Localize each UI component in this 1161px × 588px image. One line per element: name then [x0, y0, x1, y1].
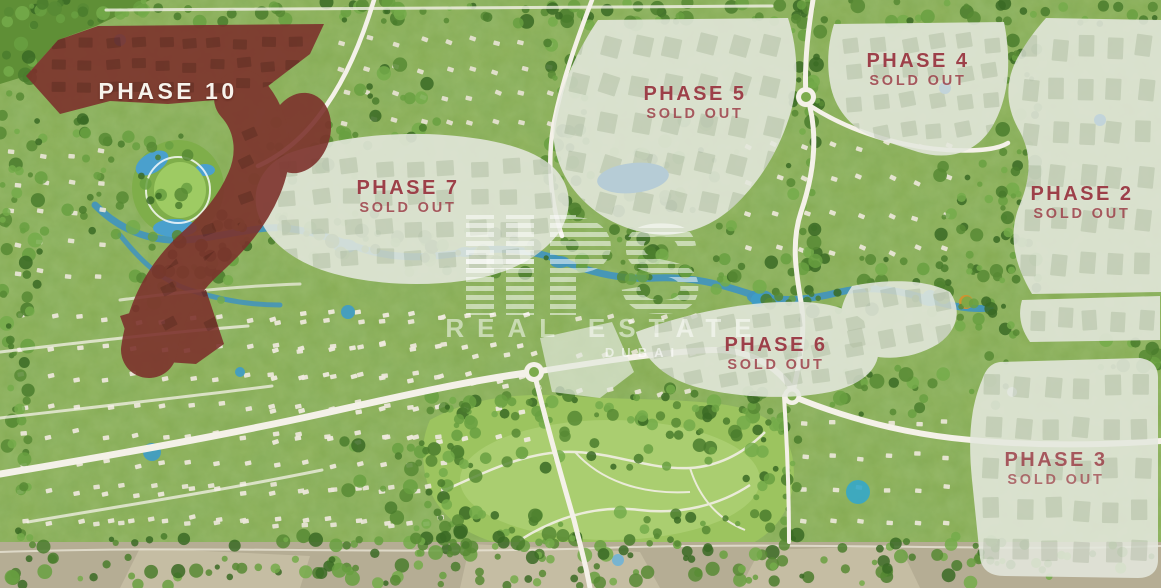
phase-4-label: PHASE 4 SOLD OUT [866, 50, 969, 90]
phase-6-label: PHASE 6 SOLD OUT [724, 334, 827, 374]
phase-name: PHASE 4 [866, 50, 969, 72]
phase-status: SOLD OUT [866, 74, 969, 90]
phase-status: SOLD OUT [643, 107, 746, 123]
phase-2-label: PHASE 2 SOLD OUT [1030, 183, 1133, 223]
phase-status: SOLD OUT [356, 201, 459, 217]
phase-3-label: PHASE 3 SOLD OUT [1004, 449, 1107, 489]
phase-status: SOLD OUT [1004, 473, 1107, 489]
phase-status: SOLD OUT [1030, 207, 1133, 223]
phase-7-label: PHASE 7 SOLD OUT [356, 177, 459, 217]
phase-10-label: PHASE 10 [98, 79, 237, 105]
phase-name: PHASE 5 [643, 83, 746, 105]
master-plan-map: S REAL ESTATE DUBAI PHASE 10 PHASE 7 SOL… [0, 0, 1161, 588]
phase-name: PHASE 2 [1030, 183, 1133, 205]
phase-status: SOLD OUT [724, 358, 827, 374]
phase-name: PHASE 6 [724, 334, 827, 356]
phase-5-label: PHASE 5 SOLD OUT [643, 83, 746, 123]
phase-name: PHASE 7 [356, 177, 459, 199]
phase-name: PHASE 3 [1004, 449, 1107, 471]
phase-name: PHASE 10 [98, 79, 237, 105]
